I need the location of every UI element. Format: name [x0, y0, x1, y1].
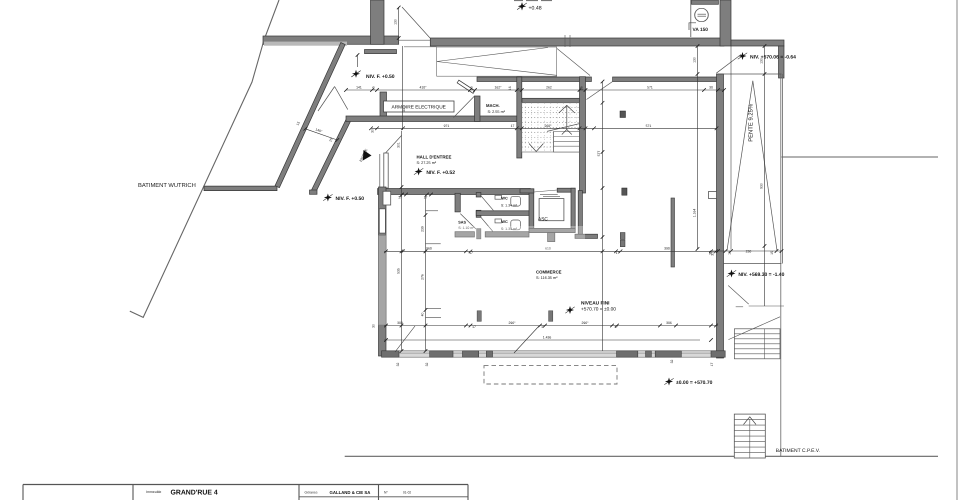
- svg-text:15: 15: [372, 86, 376, 90]
- svg-text:WC: WC: [501, 196, 508, 200]
- svg-text:Gérance: Gérance: [305, 491, 318, 495]
- svg-text:32: 32: [425, 363, 429, 367]
- svg-text:32: 32: [670, 360, 674, 364]
- svg-text:260°: 260°: [544, 124, 552, 128]
- svg-text:30: 30: [709, 85, 713, 89]
- svg-text:32: 32: [396, 363, 400, 367]
- svg-text:1.436: 1.436: [543, 335, 552, 339]
- svg-text:930: 930: [759, 183, 763, 189]
- svg-text:+0.48: +0.48: [529, 6, 542, 12]
- svg-text:30: 30: [371, 129, 375, 133]
- svg-text:SAS: SAS: [458, 221, 466, 225]
- svg-text:30: 30: [372, 324, 376, 328]
- svg-text:40: 40: [420, 313, 424, 317]
- svg-text:535: 535: [396, 268, 400, 274]
- svg-text:BATIMENT C.P.E.V.: BATIMENT C.P.E.V.: [776, 448, 820, 454]
- svg-text:296°: 296°: [508, 321, 516, 325]
- svg-text:NIV. F. +0.52: NIV. F. +0.52: [426, 170, 455, 176]
- svg-text:17: 17: [614, 325, 618, 329]
- svg-text:301: 301: [396, 142, 400, 148]
- svg-text:296°: 296°: [581, 321, 589, 325]
- svg-text:17: 17: [472, 325, 476, 329]
- svg-text:ARMOIRE ELECTRIQUE: ARMOIRE ELECTRIQUE: [392, 105, 446, 111]
- svg-text:239: 239: [420, 226, 424, 232]
- svg-text:130: 130: [394, 19, 398, 25]
- svg-text:230: 230: [746, 250, 752, 254]
- svg-text:Immeuble: Immeuble: [146, 490, 161, 494]
- svg-text:NIV. F. +0.50: NIV. F. +0.50: [366, 74, 395, 80]
- svg-text:01-02: 01-02: [403, 490, 411, 494]
- svg-text:NIV. F. +0.50: NIV. F. +0.50: [336, 196, 365, 202]
- svg-text:NIVEAU FINI: NIVEAU FINI: [581, 300, 610, 306]
- svg-text:PENTE 9.25%: PENTE 9.25%: [748, 103, 755, 142]
- svg-text:130: 130: [692, 57, 696, 63]
- svg-text:276: 276: [420, 274, 424, 280]
- svg-text:15: 15: [770, 251, 774, 255]
- svg-text:ASC: ASC: [538, 216, 548, 222]
- svg-text:1.164: 1.164: [692, 209, 696, 218]
- svg-text:S: 1.34 m²: S: 1.34 m²: [501, 203, 518, 207]
- svg-text:571: 571: [647, 85, 653, 89]
- svg-text:+570.70 = ±0.00: +570.70 = ±0.00: [581, 306, 616, 312]
- svg-text:15: 15: [470, 86, 474, 90]
- svg-text:162°: 162°: [494, 85, 502, 89]
- svg-text:971: 971: [444, 124, 450, 128]
- svg-text:15: 15: [728, 251, 732, 255]
- svg-text:MACH.: MACH.: [486, 103, 500, 108]
- svg-text:262: 262: [546, 85, 552, 89]
- svg-text:390: 390: [664, 247, 670, 251]
- svg-text:303: 303: [402, 106, 406, 112]
- svg-text:17: 17: [616, 251, 620, 255]
- svg-text:COMMERCE: COMMERCE: [536, 269, 562, 274]
- svg-text:32: 32: [709, 251, 713, 255]
- svg-text:NIV. +570.06 = -0.64: NIV. +570.06 = -0.64: [750, 54, 796, 60]
- svg-text:GALLAND & CIE SA: GALLAND & CIE SA: [330, 490, 371, 495]
- svg-text:577: 577: [597, 151, 601, 157]
- svg-text:17: 17: [710, 363, 714, 367]
- svg-text:GRAND'RUE 4: GRAND'RUE 4: [171, 490, 218, 497]
- svg-text:571: 571: [646, 124, 652, 128]
- svg-text:±0.00 = +570.70: ±0.00 = +570.70: [676, 380, 713, 386]
- svg-text:130: 130: [759, 58, 763, 64]
- svg-text:306: 306: [666, 321, 672, 325]
- svg-text:410°: 410°: [419, 85, 427, 89]
- svg-text:17: 17: [511, 124, 515, 128]
- svg-text:17: 17: [469, 251, 473, 255]
- svg-text:16: 16: [580, 86, 584, 90]
- svg-text:NIV. +569.30 = -1.40: NIV. +569.30 = -1.40: [738, 272, 784, 278]
- svg-text:WC: WC: [501, 220, 508, 224]
- svg-text:S: 116.35 m²: S: 116.35 m²: [536, 276, 558, 280]
- svg-text:BATIMENT WUTRICH: BATIMENT WUTRICH: [138, 182, 196, 189]
- svg-text:16: 16: [508, 86, 512, 90]
- svg-text:141: 141: [356, 85, 362, 89]
- svg-text:N°: N°: [384, 490, 388, 494]
- svg-text:HALL D'ENTREE: HALL D'ENTREE: [417, 154, 452, 159]
- svg-text:S: 27.25 m²: S: 27.25 m²: [417, 161, 437, 165]
- svg-text:300: 300: [397, 321, 403, 325]
- svg-text:S: 2.55 m²: S: 2.55 m²: [488, 110, 506, 114]
- svg-text:17: 17: [541, 325, 545, 329]
- svg-text:VA 150: VA 150: [693, 27, 709, 33]
